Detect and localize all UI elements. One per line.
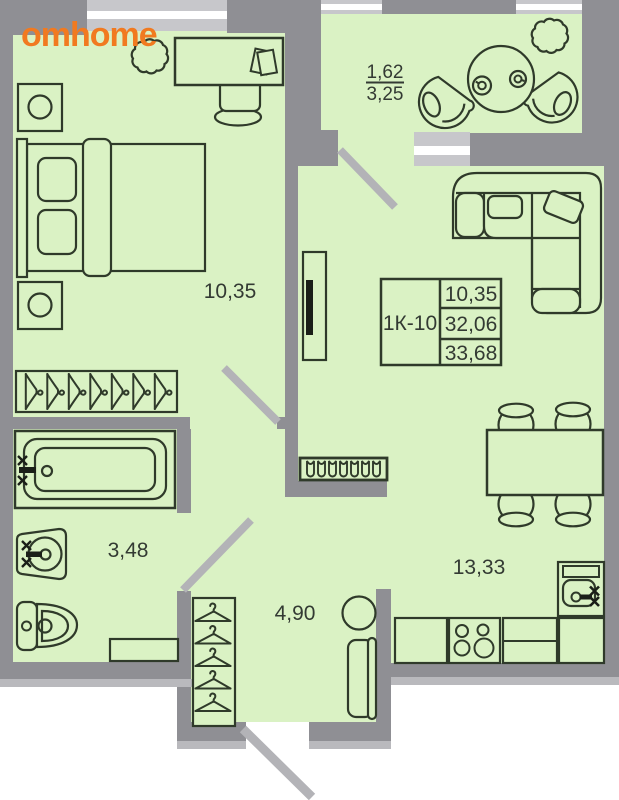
svg-text:omhome: omhome xyxy=(21,16,157,54)
svg-text:33,68: 33,68 xyxy=(445,342,498,365)
svg-text:32,06: 32,06 xyxy=(445,313,498,336)
svg-text:10,35: 10,35 xyxy=(445,283,498,306)
svg-text:10,35: 10,35 xyxy=(204,280,257,303)
svg-text:13,33: 13,33 xyxy=(453,556,506,579)
svg-text:3,48: 3,48 xyxy=(108,539,149,562)
svg-text:1К-10: 1К-10 xyxy=(383,312,437,335)
svg-text:3,25: 3,25 xyxy=(367,84,404,105)
svg-text:4,90: 4,90 xyxy=(275,602,316,625)
svg-text:1,62: 1,62 xyxy=(367,62,404,83)
